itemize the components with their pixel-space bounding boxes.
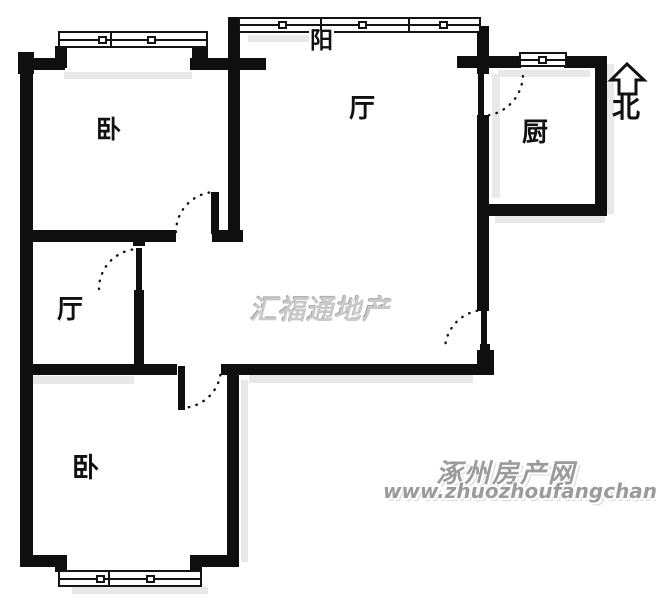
floor-plan: 卧 厅 厅 厨 卧 阳 北 汇福通地产 涿州房产网 www.zhuozhoufa…	[0, 0, 656, 600]
bedroom1-door-arc	[176, 192, 216, 232]
hall-door-arc	[99, 249, 139, 289]
room-label-bedroom-bottom: 卧	[72, 455, 99, 482]
room-label-hall: 厅	[57, 297, 83, 323]
room-label-bedroom-top: 卧	[96, 117, 121, 142]
watermark-site-url: www.zhuozhoufangchan.com	[383, 479, 656, 503]
watermark-agency: 汇福通地产	[250, 288, 390, 327]
kitchen-door-arc	[481, 74, 523, 116]
room-label-balcony: 阳	[309, 30, 334, 53]
north-label: 北	[612, 94, 640, 122]
entry-door-arc	[445, 310, 485, 350]
bedroom2-door-arc	[181, 368, 221, 408]
room-label-living: 厅	[349, 96, 375, 122]
north-arrow-icon	[611, 64, 644, 94]
room-label-kitchen: 厨	[522, 120, 548, 146]
